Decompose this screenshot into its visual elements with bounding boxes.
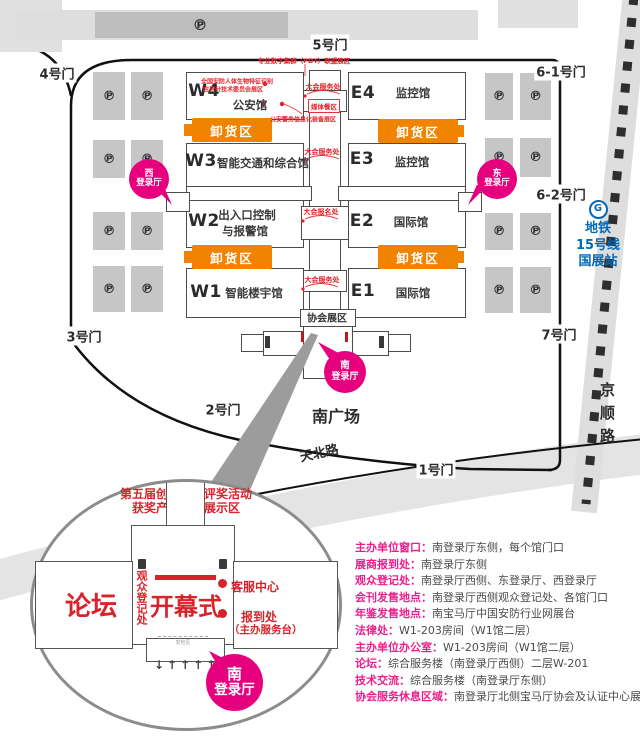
annotation-bio-line2: 应用分技术委员会展区 [203, 85, 263, 94]
info-label: 会刊发售地点： [355, 591, 432, 604]
info-row: 论坛：综合服务楼（南登录厅西侧）二层W-201 [355, 656, 640, 673]
security-check-label: 安检区 [163, 639, 203, 646]
metro-line-label-2: 15号线 [568, 238, 628, 255]
hall-e1-code: E1 [351, 281, 375, 301]
unloading-zone-label: 卸货区 [210, 121, 254, 140]
east-login-hall-badge: 东 登录厅 [477, 159, 517, 199]
parking-lot: ℗ [131, 266, 163, 312]
info-value: W1-203房间（W1馆二层） [443, 641, 581, 654]
unloading-zone-badge: 卸货区 [192, 245, 272, 269]
hall-e2-code: E2 [350, 211, 374, 231]
door-mark [265, 336, 270, 348]
annotation-service-office: 大会服务处 [305, 275, 340, 285]
info-value: W1-203房间（W1馆二层） [399, 624, 537, 637]
info-row: 法律处：W1-203房间（W1馆二层） [355, 623, 640, 640]
info-value: 南登录厅西侧观众登记处、各馆门口 [432, 591, 608, 604]
info-row: 观众登记处：南登录厅西侧、东登录厅、西登录厅 [355, 573, 640, 590]
annotation-service-office: 大会服务处 [305, 147, 340, 157]
parking-lot: ℗ [485, 267, 513, 313]
top-parking-inner [95, 12, 288, 38]
info-label: 技术交流： [355, 674, 410, 687]
metro-station-block: G 地铁 15号线 国展站 [568, 200, 628, 271]
parking-lot: ℗ [131, 212, 163, 250]
info-value: 南登录厅东侧 [421, 558, 487, 571]
red-door-mark [345, 332, 348, 342]
parking-lot: ℗ [93, 212, 125, 250]
metro-logo-letter: G [594, 201, 602, 218]
info-value: 南登录厅北侧宝马厅协会及认证中心展台 [454, 690, 640, 703]
gate-5: 5号门 [310, 35, 349, 54]
unloading-zone-badge: 卸货区 [378, 245, 458, 269]
parking-lot: ℗ [520, 138, 551, 177]
unloading-zone-badge: 卸货区 [378, 119, 458, 143]
unloading-zone-badge: 卸货区 [192, 118, 272, 142]
checkin-sub-label: （主办服务台） [229, 622, 303, 637]
service-center-dot [218, 579, 227, 588]
opening-ceremony-bar [155, 575, 216, 580]
gate-4: 4号门 [37, 64, 76, 83]
info-label: 法律处： [355, 624, 399, 637]
info-row: 技术交流：综合服务楼（南登录厅东侧） [355, 673, 640, 690]
info-label: 主办单位办公室： [355, 641, 443, 654]
metro-line-label-1: 地铁 [568, 221, 628, 238]
hall-e2-name: 国际馆 [394, 214, 429, 230]
unloading-tab [184, 124, 192, 136]
hall-w4-name: 公安馆 [233, 97, 268, 113]
info-row: 会刊发售地点：南登录厅西侧观众登记处、各馆门口 [355, 590, 640, 607]
security-line [158, 636, 208, 637]
annotation-pdt-zone: 专业数字集群（PDT）联盟展区 [258, 55, 351, 65]
checkin-dot [218, 609, 227, 618]
inset-north-corridor [166, 483, 205, 527]
parking-lot: ℗ [93, 140, 125, 178]
hall-w3-name: 智能交通和综合馆 [217, 155, 309, 171]
inset-badge-line2: 登录厅 [214, 683, 255, 699]
walkway-west [186, 186, 312, 201]
hall-e4-name: 监控馆 [396, 85, 431, 101]
info-row: 主办单位窗口：南登录厅东侧，每个馆门口 [355, 540, 640, 557]
gate-6-1: 6-1号门 [534, 62, 588, 81]
media-zone-box: 媒体餐区 [308, 99, 340, 113]
info-value: 南登录厅东侧，每个馆门口 [432, 541, 564, 554]
hall-w3-code: W3 [185, 151, 217, 171]
east-badge-line2: 登录厅 [484, 179, 510, 189]
annotation-signup-office: 大会报名处 [304, 207, 339, 217]
parking-lot: ℗ [485, 213, 513, 250]
metro-logo-icon: G [589, 200, 608, 219]
south-login-hall-badge: 南 登录厅 [324, 351, 366, 393]
west-badge-line2: 登录厅 [136, 179, 162, 189]
info-label: 观众登记处： [355, 574, 421, 587]
parking-lot: ℗ [520, 213, 551, 250]
parking-lot: ℗ [485, 73, 513, 120]
info-value: 南登录厅西侧、东登录厅、西登录厅 [421, 574, 597, 587]
exhibition-venue-map: ℗ ℗ ℗ ℗ ℗ ℗ ℗ ℗ ℗ ℗ ℗ ℗ ℗ ℗ ℗ ℗ ℗ 协会展区 卸… [0, 0, 640, 747]
south-badge-line2: 登录厅 [331, 372, 358, 382]
forum-label: 论坛 [51, 586, 131, 623]
info-value: 综合服务楼（南登录厅西侧）二层W-201 [388, 657, 588, 670]
hall-w2-name: 出入口控制 [218, 207, 276, 223]
parking-lot: ℗ [520, 267, 551, 313]
exit-icon [138, 559, 146, 569]
inset-south-login-hall-badge: 南 登录厅 [206, 654, 263, 711]
association-zone-label: 协会展区 [307, 310, 347, 325]
info-label: 展商报到处： [355, 558, 421, 571]
red-door-mark [301, 332, 304, 342]
annotation-service-office: 大会服务处 [306, 82, 341, 92]
hall-w1-name: 智能楼宇馆 [225, 285, 283, 301]
gray-block-topright [498, 0, 578, 28]
hall-e4-code: E4 [351, 83, 375, 103]
info-row: 展商报到处：南登录厅东侧 [355, 557, 640, 574]
gate-2: 2号门 [203, 400, 242, 419]
info-value: 南宝马厅中国安防行业网展台 [432, 607, 575, 620]
inset-badge-line1: 南 [227, 666, 242, 683]
hall-e1-name: 国际馆 [396, 285, 431, 301]
hall-w2-code: W2 [188, 211, 220, 231]
info-label: 协会服务休息区域： [355, 690, 454, 703]
gate-1: 1号门 [416, 460, 455, 479]
west-login-hall-badge: 西 登录厅 [129, 159, 169, 199]
hall-w1-code: W1 [190, 282, 222, 302]
hall-w2-name-line2: 与报警馆 [222, 223, 268, 239]
south-plaza-label: 南广场 [312, 403, 360, 427]
info-row: 主办单位办公室：W1-203房间（W1馆二层） [355, 640, 640, 657]
exit-icon [219, 559, 227, 569]
info-label: 论坛： [355, 657, 388, 670]
unloading-tab [184, 251, 192, 263]
info-row: 协会服务休息区域：南登录厅北侧宝马厅协会及认证中心展台 [355, 689, 640, 706]
hall-e3-code: E3 [350, 149, 374, 169]
info-row: 年鉴发售地点：南宝马厅中国安防行业网展台 [355, 606, 640, 623]
parking-lot: ℗ [131, 72, 163, 120]
media-zone-label: 媒体餐区 [311, 101, 337, 111]
parking-icon: ℗ [193, 16, 208, 34]
info-label: 主办单位窗口： [355, 541, 432, 554]
south-badge-line1: 南 [340, 361, 350, 372]
info-value: 综合服务楼（南登录厅东侧） [410, 674, 553, 687]
info-label: 年鉴发售地点： [355, 607, 432, 620]
jingshun-road-label: 京顺路 [597, 382, 618, 451]
inset-circle: 第五届创新产品评奖活动 获奖产品图片展示区 论坛 观众登记处 开幕式 客服中心 … [30, 479, 342, 731]
annotation-police-info: 公安警务信息化装备展区 [270, 115, 336, 124]
gate-7: 7号门 [539, 325, 578, 344]
venue-info-list: 主办单位窗口：南登录厅东侧，每个馆门口 展商报到处：南登录厅东侧 观众登记处：南… [355, 540, 640, 706]
unloading-zone-label: 卸货区 [210, 248, 254, 267]
door-mark [379, 336, 384, 348]
unloading-zone-label: 卸货区 [396, 122, 440, 141]
hall-e3-name: 监控馆 [395, 154, 430, 170]
unloading-zone-label: 卸货区 [396, 248, 440, 267]
walkway-east [338, 186, 466, 201]
service-center-label: 客服中心 [231, 578, 279, 595]
parking-lot: ℗ [93, 266, 125, 312]
metro-line-label-3: 国展站 [568, 254, 628, 271]
parking-lot: ℗ [93, 72, 125, 120]
gate-3: 3号门 [64, 327, 103, 346]
